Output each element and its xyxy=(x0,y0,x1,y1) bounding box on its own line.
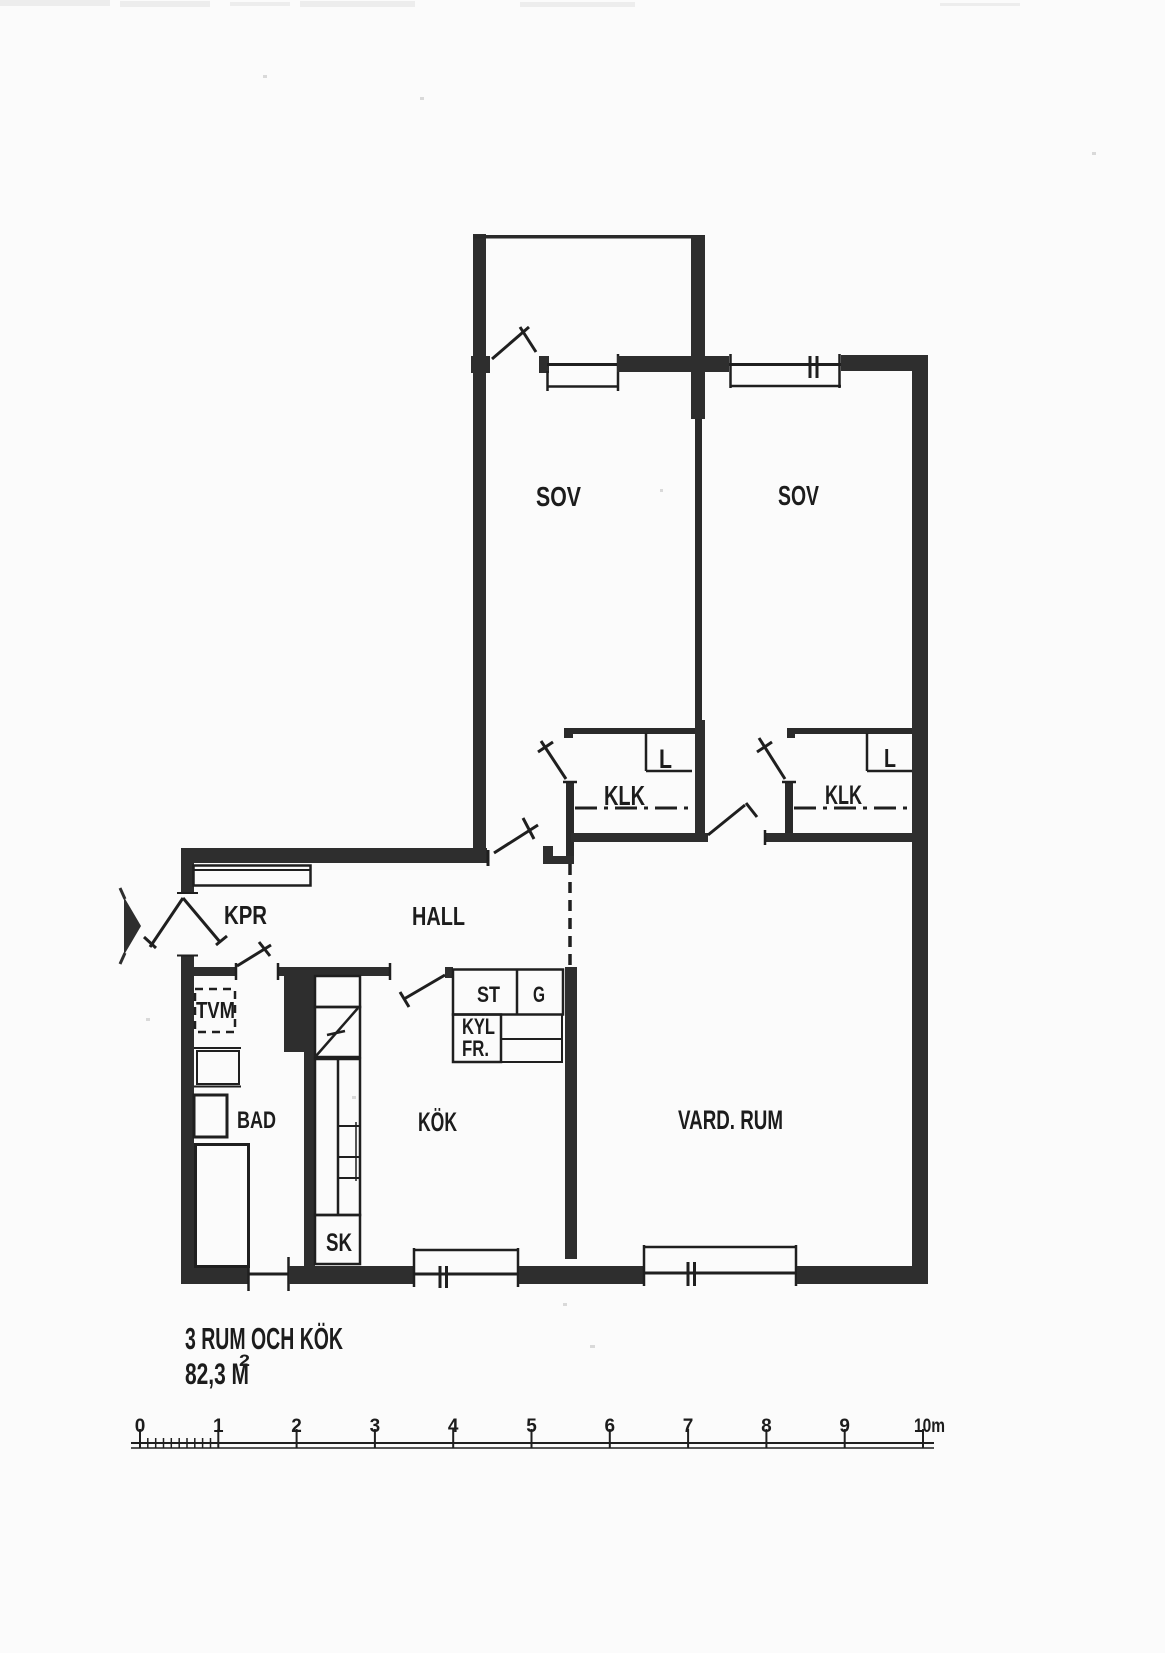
svg-text:1: 1 xyxy=(213,1416,224,1437)
svg-text:7: 7 xyxy=(683,1416,694,1437)
svg-text:9: 9 xyxy=(839,1416,850,1437)
svg-text:8: 8 xyxy=(761,1416,772,1437)
svg-text:HALL: HALL xyxy=(412,901,465,931)
svg-text:KLK: KLK xyxy=(604,780,645,811)
svg-text:KPR: KPR xyxy=(224,900,267,930)
svg-text:6: 6 xyxy=(605,1416,616,1437)
svg-text:TVM: TVM xyxy=(196,997,235,1023)
svg-text:3: 3 xyxy=(370,1416,381,1437)
svg-text:L: L xyxy=(884,743,896,773)
svg-text:FR.: FR. xyxy=(462,1036,489,1061)
svg-text:KLK: KLK xyxy=(825,780,862,810)
svg-text:0: 0 xyxy=(135,1416,146,1437)
svg-text:2: 2 xyxy=(291,1416,302,1437)
svg-text:BAD: BAD xyxy=(237,1107,276,1134)
svg-text:SOV: SOV xyxy=(778,480,819,511)
svg-text:3 RUM OCH KÖK: 3 RUM OCH KÖK xyxy=(185,1321,343,1356)
svg-text:G: G xyxy=(533,982,545,1007)
svg-text:VARD. RUM: VARD. RUM xyxy=(678,1105,783,1135)
svg-text:ST: ST xyxy=(477,982,500,1007)
svg-text:10m: 10m xyxy=(914,1416,945,1437)
svg-text:L: L xyxy=(659,744,672,774)
svg-text:SK: SK xyxy=(326,1229,352,1257)
svg-text:2: 2 xyxy=(239,1351,250,1370)
svg-text:4: 4 xyxy=(448,1416,459,1437)
svg-text:SOV: SOV xyxy=(536,481,581,512)
svg-text:5: 5 xyxy=(526,1416,537,1437)
svg-text:KÖK: KÖK xyxy=(418,1107,457,1137)
